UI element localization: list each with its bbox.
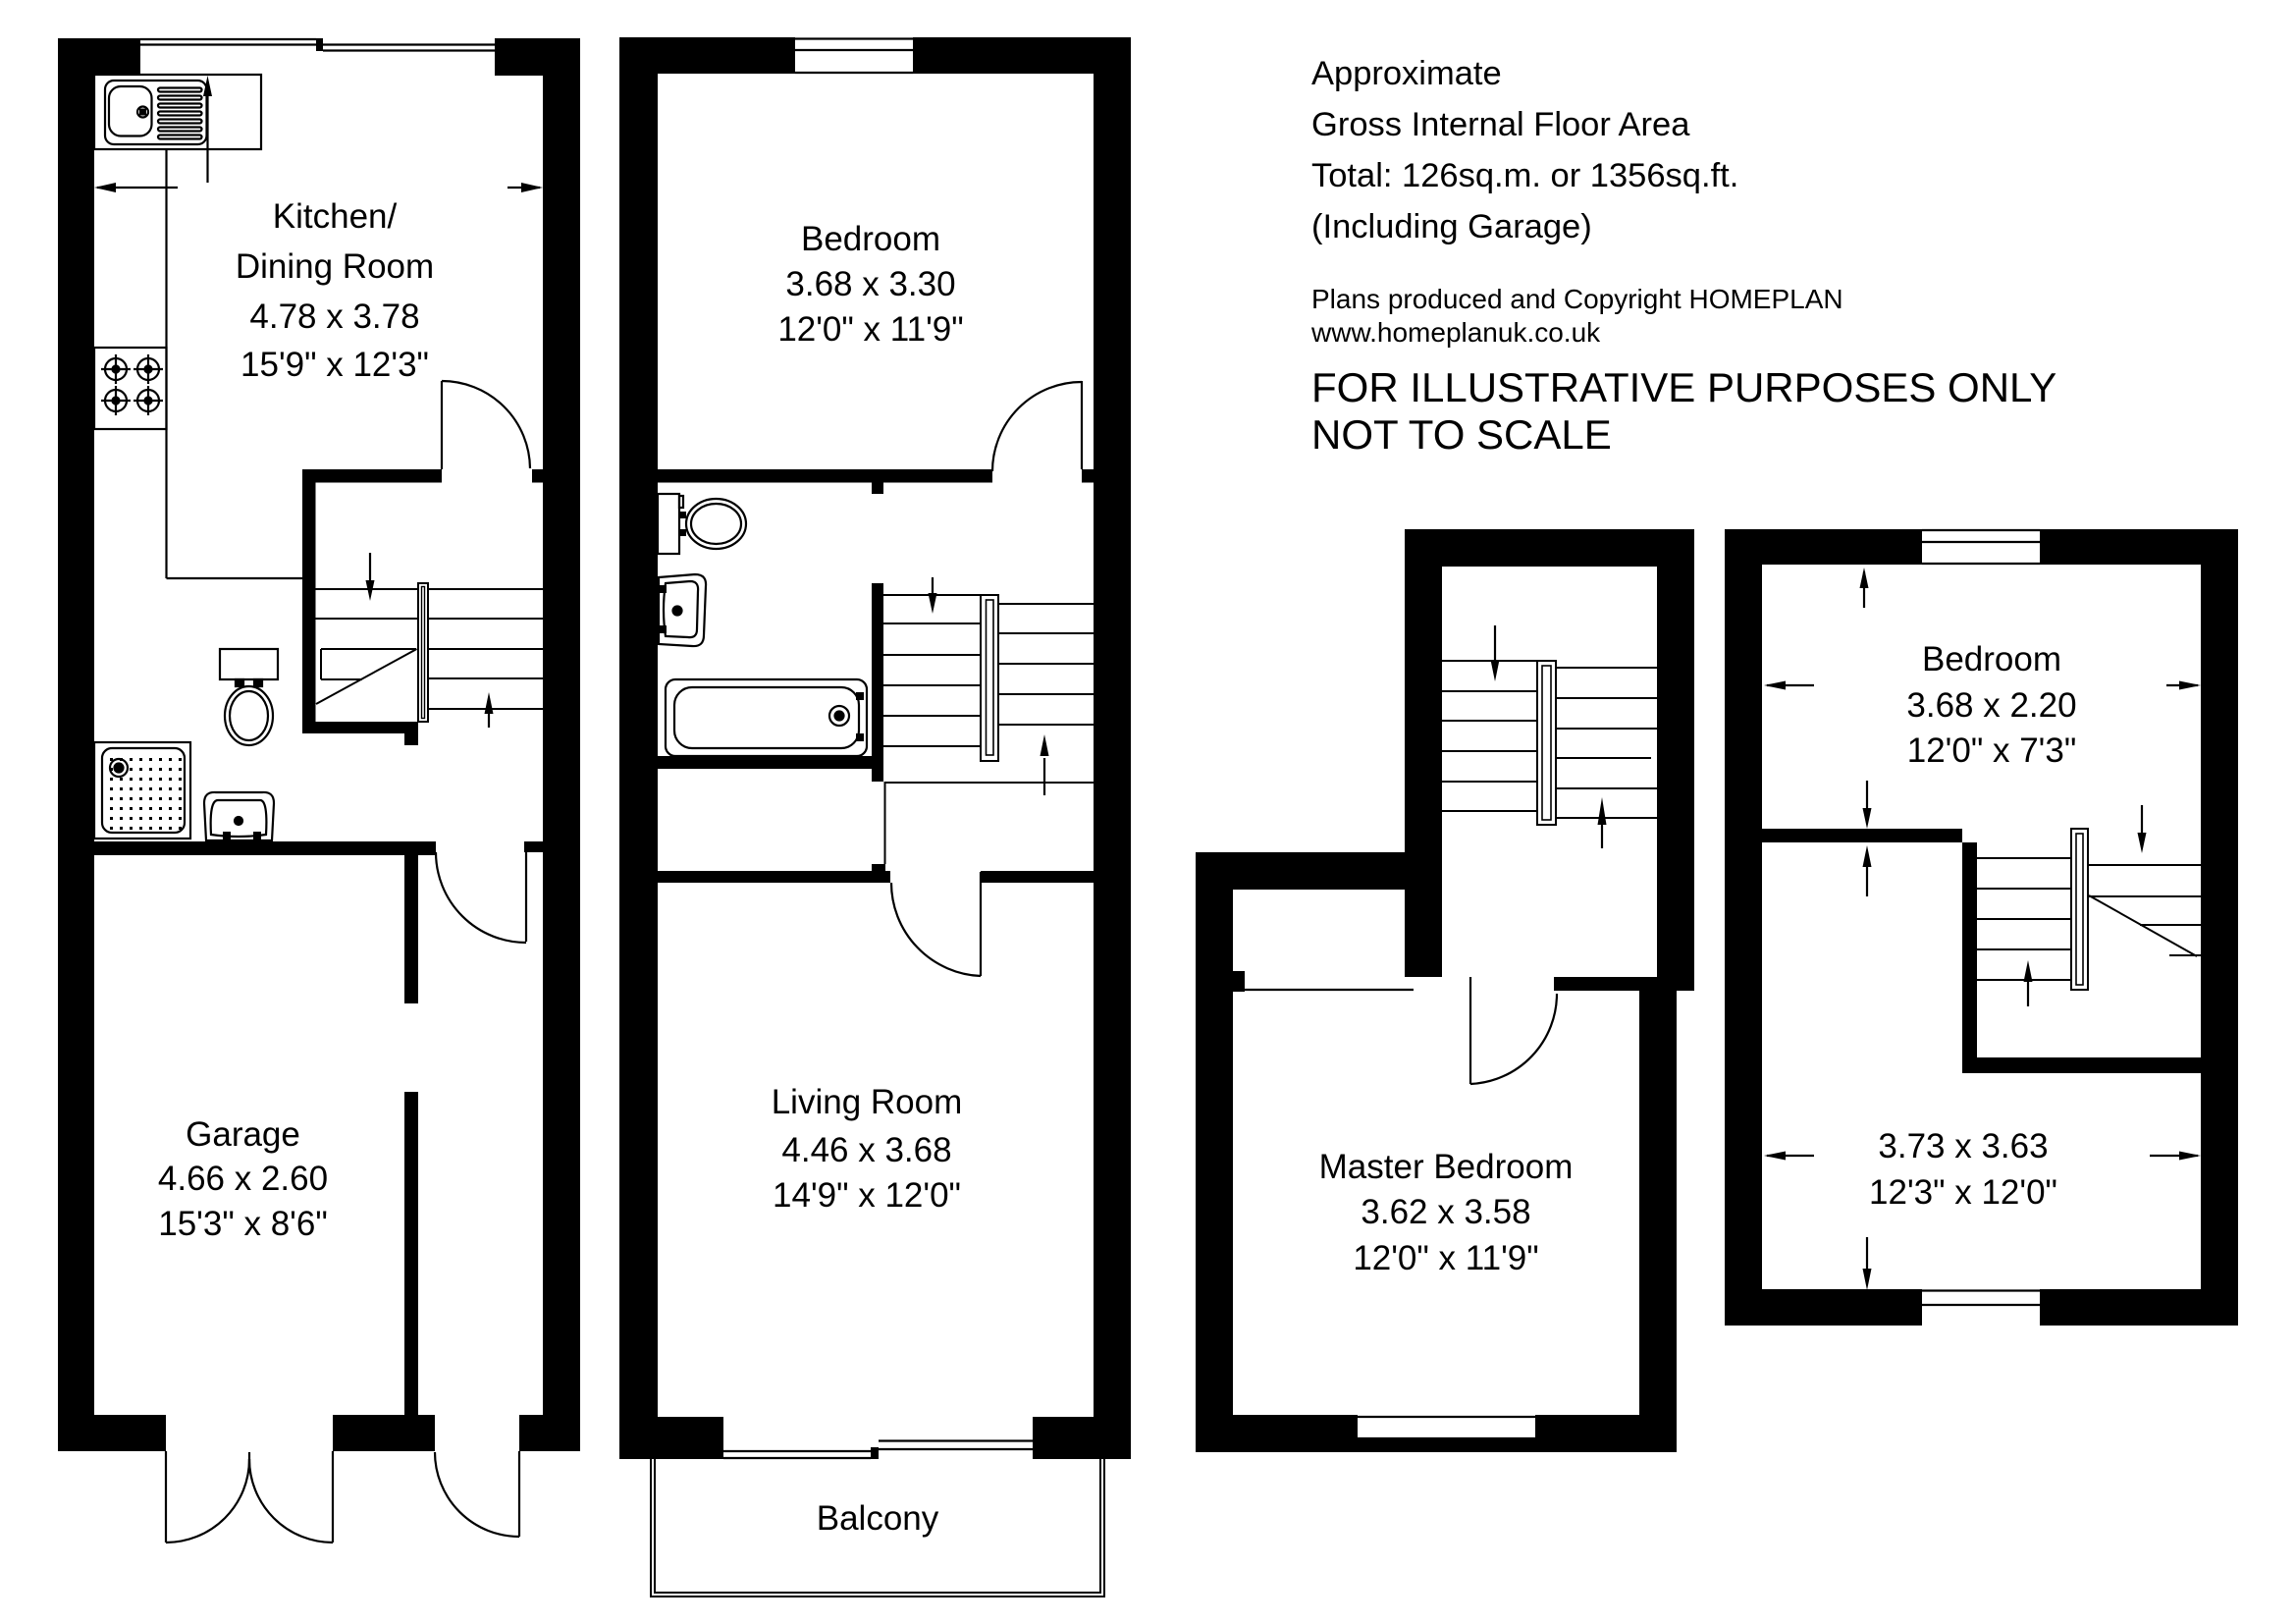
svg-text:4.78 x 3.78: 4.78 x 3.78 (249, 298, 419, 336)
svg-text:Bedroom: Bedroom (801, 220, 940, 258)
svg-text:15'3" x 8'6": 15'3" x 8'6" (158, 1205, 328, 1243)
svg-text:Living Room: Living Room (772, 1083, 963, 1121)
svg-text:12'0" x 11'9": 12'0" x 11'9" (777, 310, 963, 349)
svg-text:Bedroom: Bedroom (1922, 640, 2061, 678)
svg-text:NOT TO SCALE: NOT TO SCALE (1311, 411, 1612, 458)
svg-text:12'3" x 12'0": 12'3" x 12'0" (1869, 1173, 2057, 1212)
svg-text:Balcony: Balcony (817, 1499, 939, 1538)
svg-text:Approximate: Approximate (1311, 55, 1502, 92)
svg-text:Plans produced and Copyright H: Plans produced and Copyright HOMEPLAN (1311, 284, 1843, 314)
svg-text:Kitchen/: Kitchen/ (273, 197, 398, 236)
svg-text:3.73 x 3.63: 3.73 x 3.63 (1878, 1127, 2048, 1165)
svg-text:Dining Room: Dining Room (236, 247, 434, 286)
svg-text:3.68 x 3.30: 3.68 x 3.30 (785, 265, 955, 303)
svg-text:Master Bedroom: Master Bedroom (1319, 1148, 1574, 1186)
svg-text:12'0" x 7'3": 12'0" x 7'3" (1907, 731, 2077, 770)
svg-text:4.46 x 3.68: 4.46 x 3.68 (781, 1131, 951, 1169)
svg-text:3.68 x 2.20: 3.68 x 2.20 (1906, 686, 2076, 725)
svg-text:www.homeplanuk.co.uk: www.homeplanuk.co.uk (1310, 317, 1601, 348)
svg-text:Gross Internal Floor Area: Gross Internal Floor Area (1311, 106, 1690, 143)
svg-text:14'9" x 12'0": 14'9" x 12'0" (773, 1176, 961, 1215)
svg-text:Total: 126sq.m. or 1356sq.ft.: Total: 126sq.m. or 1356sq.ft. (1311, 157, 1738, 194)
svg-text:4.66 x 2.60: 4.66 x 2.60 (158, 1160, 328, 1198)
svg-text:FOR ILLUSTRATIVE PURPOSES ONLY: FOR ILLUSTRATIVE PURPOSES ONLY (1311, 364, 2056, 410)
svg-text:12'0" x 11'9": 12'0" x 11'9" (1353, 1239, 1538, 1277)
svg-text:3.62 x 3.58: 3.62 x 3.58 (1361, 1193, 1530, 1231)
svg-text:(Including Garage): (Including Garage) (1311, 208, 1592, 245)
svg-text:Garage: Garage (186, 1115, 300, 1154)
svg-text:15'9" x 12'3": 15'9" x 12'3" (240, 346, 429, 384)
